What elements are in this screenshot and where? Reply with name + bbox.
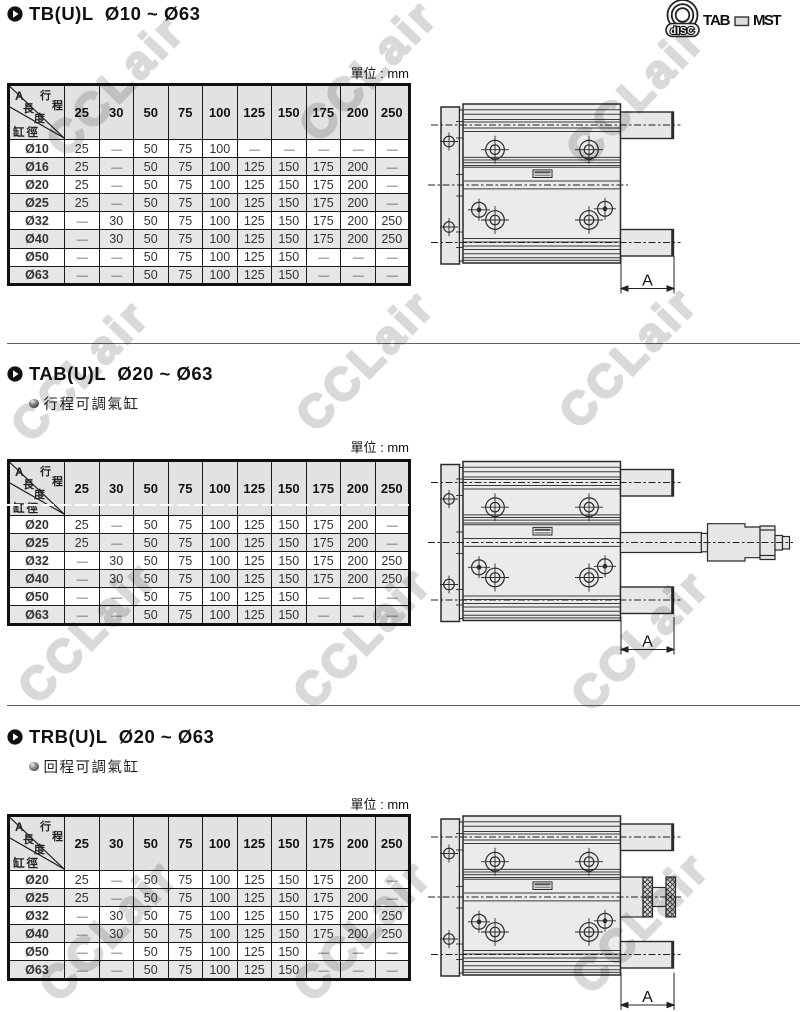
- svg-text:dISC: dISC: [670, 26, 695, 37]
- svg-text:A: A: [642, 989, 653, 1006]
- svg-text:TAB: TAB: [703, 12, 731, 29]
- svg-text:MST: MST: [753, 12, 782, 29]
- svg-text:A: A: [642, 634, 653, 651]
- svg-text:A: A: [642, 273, 653, 290]
